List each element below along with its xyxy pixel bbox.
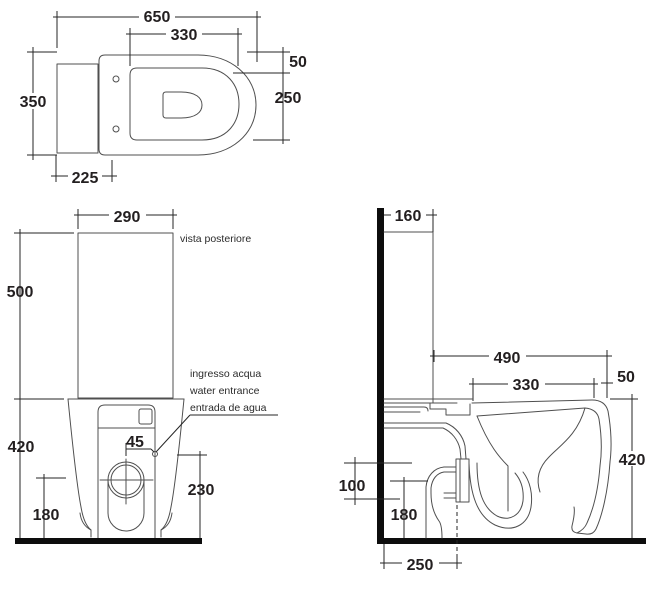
- dim-tank-height-and-bowl-height: 500 420: [7, 229, 74, 538]
- trap-outer: [469, 463, 532, 528]
- dim-total-length: 650: [53, 9, 261, 62]
- dim-label: 330: [171, 27, 198, 44]
- bowl-left-side: [68, 399, 91, 537]
- drawing-canvas: 650 330 350 225 50: [0, 0, 663, 593]
- rim-top: [472, 400, 592, 403]
- rear-view-caption: vista posteriore: [180, 233, 251, 245]
- dim-label: 50: [617, 369, 635, 386]
- pipe-flange: [456, 459, 469, 502]
- side-view: 160 490 330 50 420: [339, 208, 651, 574]
- seat-inner-ring: [130, 68, 239, 140]
- dim-label: 180: [391, 507, 418, 524]
- front-wall-inner: [577, 466, 600, 533]
- pipe-base: [431, 493, 442, 538]
- trap-inner: [477, 463, 523, 518]
- dim-label: 50: [289, 54, 307, 71]
- dim-outlet-distance: 250: [380, 544, 462, 574]
- callout-leader: [156, 415, 190, 452]
- dim-label: 230: [188, 482, 215, 499]
- dim-inlet-height: 230: [177, 451, 214, 538]
- bowl-funnel-right: [538, 408, 585, 492]
- dim-label: 500: [7, 284, 34, 301]
- dim-label: 330: [513, 377, 540, 394]
- dim-label: 290: [114, 209, 141, 226]
- dim-label: 250: [407, 557, 434, 574]
- dim-label: 45: [126, 434, 144, 451]
- rear-view: 290 500 420 180 230 45 ingresso acqua wa…: [7, 208, 278, 544]
- wall: [377, 208, 384, 544]
- dim-rim-gap-and-opening-width: 50 250: [233, 47, 307, 144]
- dim-rim-length: 330: [469, 376, 598, 401]
- dim-label: 225: [72, 170, 99, 187]
- toilet-technical-drawing: 650 330 350 225 50: [0, 0, 663, 593]
- top-view-drawing: [57, 55, 256, 155]
- dim-label: 490: [494, 350, 521, 367]
- callout-line-2: water entrance: [189, 385, 260, 397]
- dim-label: 180: [33, 507, 60, 524]
- bowl-right-side: [161, 399, 184, 537]
- bowl-back-shroud: [384, 423, 466, 459]
- cistern-rear: [78, 233, 173, 398]
- hinge-hole-bottom: [113, 126, 119, 132]
- dim-label: 650: [144, 9, 171, 26]
- dim-label: 420: [619, 452, 646, 469]
- cistern-side: [384, 232, 433, 403]
- floor-rear: [15, 538, 202, 544]
- dim-inlet-offset: 45: [126, 434, 154, 456]
- floor-side: [377, 538, 646, 544]
- top-view: 650 330 350 225 50: [17, 9, 307, 187]
- water-inlet-callout: ingresso acqua water entrance entrada de…: [156, 368, 278, 452]
- cistern-bottom: [384, 399, 472, 403]
- dim-label: 350: [20, 94, 47, 111]
- dim-label: 420: [8, 439, 35, 456]
- rear-view-drawing: [15, 233, 202, 544]
- dim-label: 160: [395, 208, 422, 225]
- front-wall-outer: [572, 462, 610, 534]
- dim-total-width: 350: [17, 47, 57, 160]
- dim-label: 250: [275, 90, 302, 107]
- hinge-hole-top: [113, 76, 119, 82]
- pipe-elbow-inner: [431, 472, 444, 493]
- dim-outlet-height: 180: [390, 477, 428, 538]
- callout-line-1: ingresso acqua: [190, 368, 261, 380]
- dim-bowl-height-side: 420: [610, 394, 651, 538]
- dim-rim-step: 50: [601, 369, 635, 386]
- flush-opening: [139, 409, 152, 424]
- dim-drain-height: 180: [33, 474, 66, 538]
- dim-tank-depth-side: 160: [384, 208, 437, 232]
- dim-tank-width: 290: [74, 208, 177, 229]
- seat-slab: [384, 407, 428, 412]
- hinge-bracket: [430, 403, 470, 415]
- outlet-pipe: [444, 467, 456, 498]
- dim-tank-depth: 225: [51, 155, 117, 187]
- cistern-plan: [57, 64, 98, 153]
- callout-line-3: entrada de agua: [190, 402, 267, 414]
- rim-inner: [477, 408, 601, 466]
- dim-label: 100: [339, 478, 366, 495]
- bowl-opening: [163, 92, 202, 118]
